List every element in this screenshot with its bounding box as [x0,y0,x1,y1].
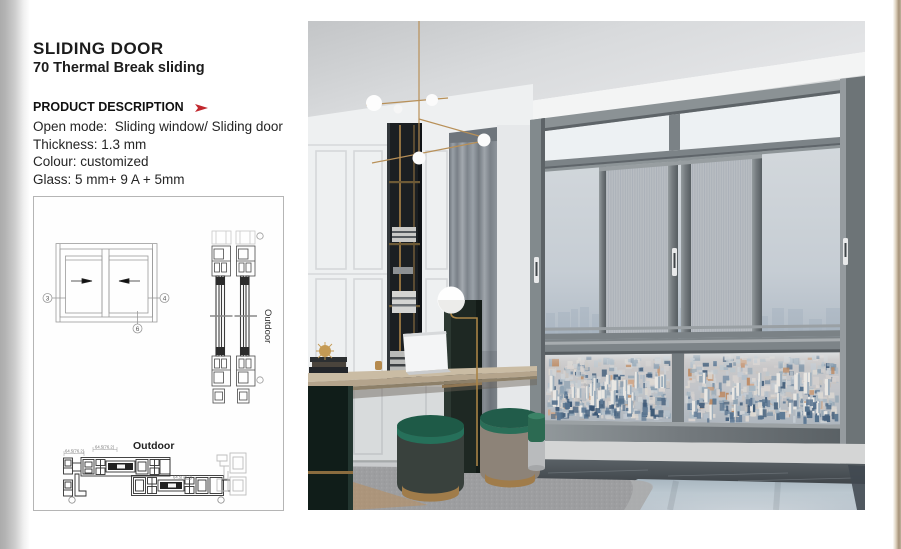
svg-text:64.5(76.2): 64.5(76.2) [95,445,115,450]
svg-text:4: 4 [163,296,167,303]
svg-text:3: 3 [46,296,50,303]
svg-text:64.5(76.2): 64.5(76.2) [65,449,85,454]
svg-text:Outdoor: Outdoor [262,309,273,343]
svg-text:64.5(76.2): 64.5(76.2) [173,475,193,480]
svg-text:6: 6 [136,326,140,333]
svg-text:Outdoor: Outdoor [133,440,174,452]
